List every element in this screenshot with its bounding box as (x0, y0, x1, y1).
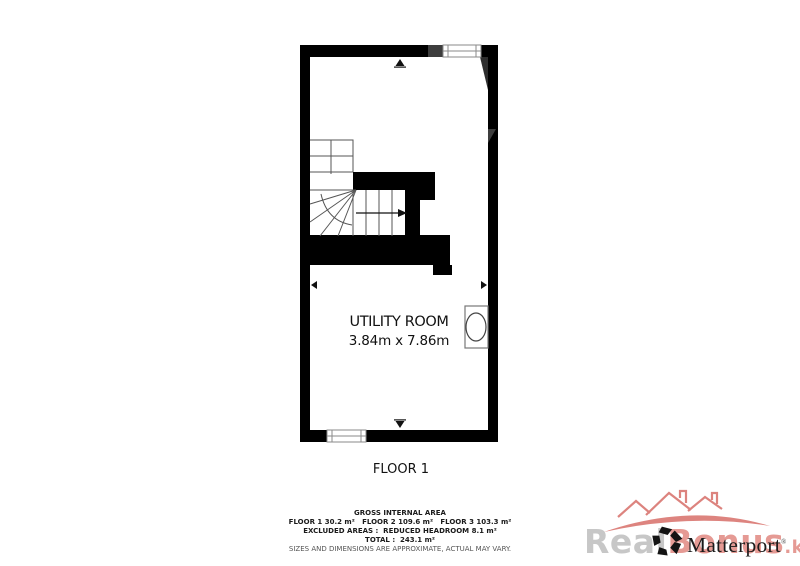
matterport-wordmark: Matterport® (687, 533, 786, 558)
matterport-logo-icon (651, 526, 683, 558)
watermark-roofs-icon (0, 0, 800, 566)
registered-mark: ® (781, 538, 787, 546)
floorplan-page: UTILITY ROOM 3.84m x 7.86m FLOOR 1 GROSS… (0, 0, 800, 566)
watermark-text-suffix: .kz (784, 537, 800, 558)
matterport-name: Matterport (687, 533, 781, 557)
